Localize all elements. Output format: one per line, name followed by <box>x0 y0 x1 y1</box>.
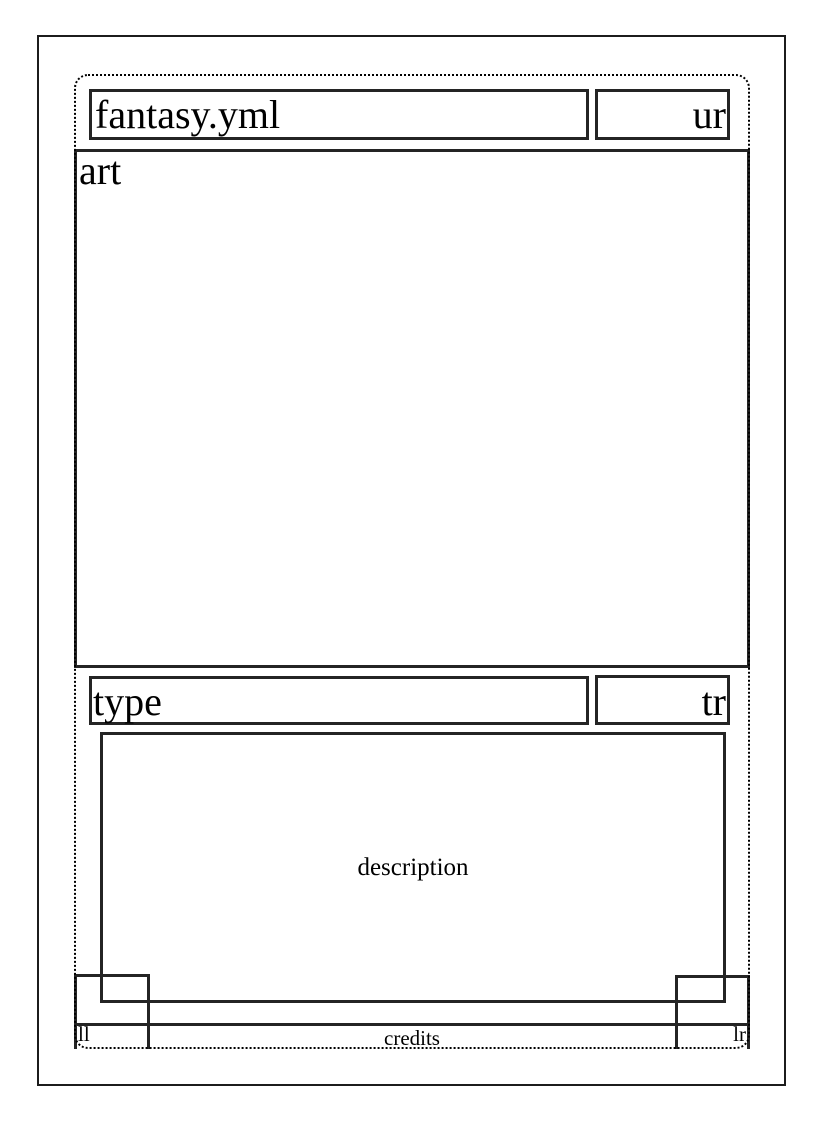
description-label: description <box>357 855 468 880</box>
art-box: art <box>74 149 750 668</box>
title-label: fantasy.yml <box>92 96 280 134</box>
title-box: fantasy.yml <box>89 89 589 140</box>
upper-right-box: ur <box>595 89 730 140</box>
lower-right-box: lr <box>675 975 750 1049</box>
card-template-preview: fantasy.yml ur art type tr description l… <box>0 0 825 1125</box>
credits-label: credits <box>384 1026 440 1049</box>
lower-right-label: lr <box>733 1024 747 1049</box>
description-box: description <box>100 732 726 1003</box>
art-label: art <box>77 152 121 190</box>
credits-bar: credits <box>74 1023 750 1049</box>
upper-right-label: ur <box>693 96 727 134</box>
type-right-box: tr <box>595 675 730 725</box>
lower-left-box: ll <box>74 974 150 1049</box>
lower-left-label: ll <box>77 1024 90 1049</box>
type-right-label: tr <box>702 680 727 721</box>
type-box: type <box>89 676 589 725</box>
type-label: type <box>92 680 162 721</box>
